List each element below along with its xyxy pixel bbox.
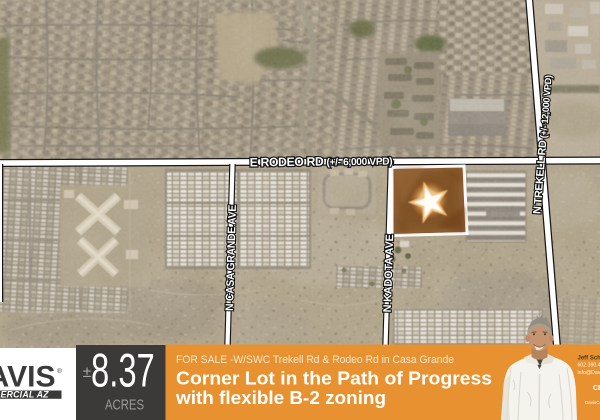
svg-text:Jeff Schwabe: Jeff Schwabe — [578, 356, 600, 362]
svg-text:®: ® — [57, 367, 62, 375]
svg-text:ERCIAL AZ: ERCIAL AZ — [1, 390, 50, 400]
svg-text:FOR SALE -W/SWC Trekell Rd & R: FOR SALE -W/SWC Trekell Rd & Rodeo Rd in… — [176, 354, 454, 366]
svg-text:N KADOTA AVE: N KADOTA AVE — [382, 234, 396, 312]
svg-text:E RODEO RD (+/- 6,000 VPD): E RODEO RD (+/- 6,000 VPD) — [250, 154, 393, 170]
svg-text:DAVIS: DAVIS — [0, 361, 55, 394]
svg-text:±: ± — [83, 364, 92, 381]
svg-text:ACRES: ACRES — [105, 397, 144, 414]
svg-text:with flexible B-2 zoning: with flexible B-2 zoning — [175, 388, 386, 408]
svg-text:DavisCommercialAZ.com: DavisCommercialAZ.com — [585, 400, 600, 405]
svg-text:Corner Lot in the Path of Prog: Corner Lot in the Path of Progress — [176, 368, 492, 388]
svg-text:8.37: 8.37 — [91, 343, 155, 397]
svg-text:info@DavisCommercialAZ.com: info@DavisCommercialAZ.com — [578, 370, 600, 376]
svg-text:602.390.4954: 602.390.4954 — [578, 362, 600, 368]
svg-text:CB: CB — [593, 385, 600, 392]
